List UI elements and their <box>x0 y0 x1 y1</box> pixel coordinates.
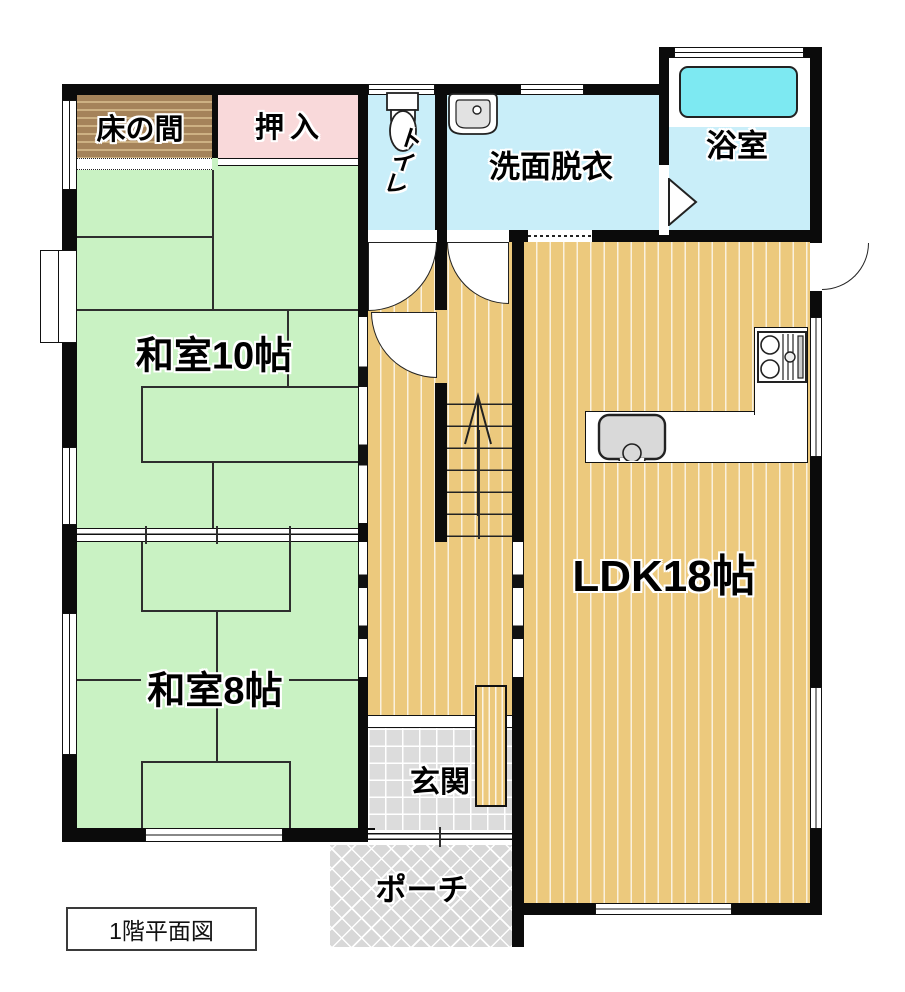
tatami-line <box>141 761 143 828</box>
room-label-porch: ポーチ <box>376 865 469 910</box>
back-door-arc <box>822 243 869 290</box>
bay-window-left <box>40 250 77 343</box>
window-washitsu8-bottom <box>145 828 283 842</box>
wall-porch-right-stub <box>512 915 524 947</box>
wall-tokonoma-divider <box>212 84 218 158</box>
kitchen-sink-icon <box>597 413 667 461</box>
wall-hall-ldk-upper <box>512 240 524 542</box>
wall-stairs-left <box>435 383 447 542</box>
tatami-line <box>77 236 213 238</box>
tatami-line <box>212 461 214 528</box>
wall-hall-ldk-lower <box>512 677 524 915</box>
washitsu10-sliding-door <box>358 317 368 523</box>
stove-icon <box>757 331 807 383</box>
wall-toilet-right <box>435 84 447 240</box>
room-label-bathroom: 浴室 <box>706 121 768 166</box>
tatami-line <box>289 542 291 611</box>
bathroom-folding-door-icon <box>668 178 698 226</box>
bathtub-icon <box>679 66 798 118</box>
window-ldk-bottom <box>595 903 732 915</box>
back-door-opening <box>810 243 822 291</box>
fusuma-tick <box>289 526 291 544</box>
tatami-line <box>141 761 291 763</box>
floor-plan-caption: 1階平面図 <box>66 907 257 951</box>
tatami-line <box>289 679 358 681</box>
window-left-1 <box>62 100 77 190</box>
washroom-ldk-sliding-hatch <box>528 230 592 242</box>
window-ldk-right <box>810 687 822 829</box>
tokonoma-edge-dotted <box>77 158 212 170</box>
shoe-cabinet <box>475 685 507 807</box>
oshiire-sliding-front <box>218 158 358 166</box>
washroom-door-opening <box>447 230 509 242</box>
entrance-door-tick <box>439 827 441 847</box>
room-label-washitsu10: 和室10帖 <box>136 325 292 380</box>
window-left-3 <box>62 613 77 755</box>
window-left-2 <box>62 447 77 525</box>
fusuma-partition <box>77 528 358 542</box>
toilet-door-opening <box>368 230 437 242</box>
stairs-up-arrow-icon <box>447 386 512 526</box>
wall-hall-center-stub <box>435 240 447 310</box>
tatami-line <box>141 386 143 462</box>
tatami-line <box>141 461 358 463</box>
room-label-tokonoma: 床の間 <box>96 106 183 148</box>
tatami-line <box>77 679 141 681</box>
tatami-line <box>289 761 291 828</box>
floor-plan: 床の間 押入 トイレ 洗面脱衣 浴室 和室10帖 和室8帖 LDK18帖 玄関 … <box>0 0 905 992</box>
window-washroom-top <box>520 84 584 95</box>
tatami-line <box>141 542 143 611</box>
fusuma-tick <box>216 526 218 544</box>
room-label-genkan: 玄関 <box>410 757 470 801</box>
room-label-washitsu8: 和室8帖 <box>147 660 282 715</box>
sink-icon <box>447 92 499 136</box>
fusuma-tick <box>145 526 147 544</box>
wall-genkan-left <box>358 677 368 842</box>
tatami-line <box>77 309 358 311</box>
wall-washitsu-hall-upper <box>358 84 368 317</box>
room-label-oshiire: 押入 <box>255 104 325 146</box>
wall-washitsu-hall-mid <box>358 523 368 542</box>
tatami-line <box>141 386 358 388</box>
room-label-washroom: 洗面脱衣 <box>489 142 613 187</box>
floor-plan-caption-text: 1階平面図 <box>109 912 214 946</box>
tatami-line <box>212 170 214 310</box>
hall-ldk-sliding-door <box>512 542 524 677</box>
room-label-ldk: LDK18帖 <box>572 540 755 604</box>
washitsu8-sliding-door <box>358 542 368 677</box>
window-bathroom-top <box>674 47 804 58</box>
window-kitchen-right <box>810 317 822 457</box>
